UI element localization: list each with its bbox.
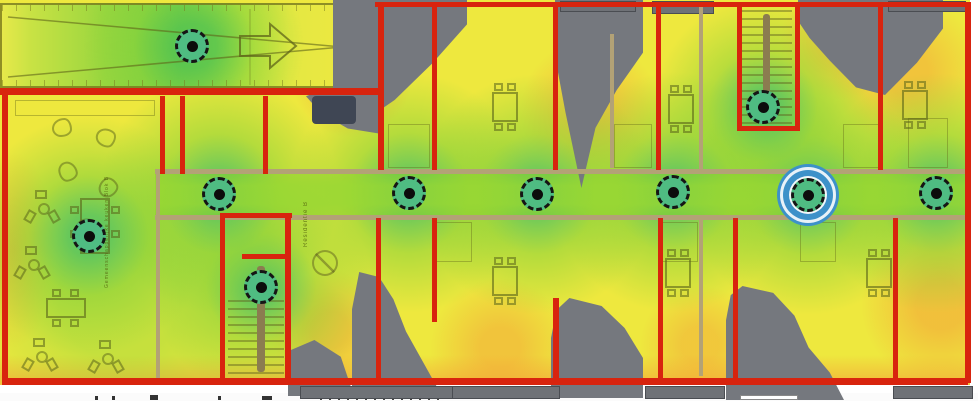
room-outline: [15, 100, 155, 116]
sheet-mark: [262, 396, 272, 400]
dining-set: [665, 258, 691, 288]
floorplan-heatmap-canvas[interactable]: Residentie B Gemeenschappelijke keuken B…: [0, 0, 978, 401]
sheet-box: [740, 395, 798, 400]
room-outline: [908, 118, 948, 168]
bean-chair: [52, 118, 72, 137]
seating-cluster: [14, 246, 50, 282]
access-point-marker[interactable]: [72, 219, 106, 253]
room-outline: [800, 222, 836, 262]
corridor-signal-band: [155, 172, 967, 218]
seating-cluster: [88, 340, 124, 376]
wall: [737, 126, 800, 131]
stairs: [228, 300, 284, 376]
balcony: [893, 386, 973, 399]
wall: [156, 174, 160, 380]
sheet-mark: [218, 396, 221, 400]
wall: [699, 7, 703, 169]
wall: [965, 2, 971, 383]
dining-set: [492, 92, 518, 122]
access-point-marker-selected[interactable]: [791, 178, 825, 212]
wall: [2, 88, 8, 385]
wall: [242, 254, 288, 259]
wall: [553, 2, 558, 170]
wall: [656, 2, 661, 170]
wall: [0, 88, 384, 95]
seating-cluster: [22, 338, 58, 374]
elevator-symbol: [312, 250, 338, 276]
room-outline: [843, 124, 881, 168]
wall: [553, 298, 559, 380]
balcony: [645, 386, 725, 399]
access-point-marker[interactable]: [392, 176, 426, 210]
wall: [893, 218, 898, 378]
balcony: [300, 386, 455, 399]
wall: [160, 96, 165, 174]
wall: [285, 213, 291, 380]
wall: [180, 96, 185, 174]
wall: [263, 96, 268, 174]
dining-set: [866, 258, 892, 288]
wall: [2, 378, 968, 385]
wall: [376, 218, 381, 378]
room-outline: [434, 222, 472, 262]
wall: [658, 218, 663, 378]
table: [46, 298, 86, 318]
room-outline: [614, 124, 652, 168]
access-point-marker[interactable]: [520, 177, 554, 211]
wall: [378, 2, 384, 170]
direction-arrow-icon: [240, 24, 296, 68]
wall: [733, 218, 738, 378]
wall: [699, 220, 703, 376]
access-point-marker[interactable]: [746, 90, 780, 124]
wall: [737, 2, 742, 130]
kitchen-counter: [312, 96, 356, 124]
sheet-mark: [150, 395, 158, 400]
wall: [432, 218, 437, 322]
balcony: [452, 386, 560, 399]
wall: [795, 2, 800, 130]
sheet-mark: [112, 396, 115, 400]
sheet-mark: [95, 396, 98, 400]
dining-set: [902, 90, 928, 120]
seating-cluster: [24, 190, 60, 226]
access-point-marker[interactable]: [919, 176, 953, 210]
dining-set: [668, 94, 694, 124]
access-point-marker[interactable]: [244, 270, 278, 304]
access-point-marker[interactable]: [656, 175, 690, 209]
access-point-marker[interactable]: [202, 177, 236, 211]
access-point-marker[interactable]: [175, 29, 209, 63]
room-label-residentie: Residentie B: [303, 185, 309, 247]
dining-set: [492, 266, 518, 296]
wall: [155, 169, 967, 174]
wall: [222, 213, 292, 218]
room-outline: [388, 124, 430, 168]
wall: [220, 213, 225, 380]
wall: [878, 2, 883, 170]
wall: [432, 2, 437, 170]
